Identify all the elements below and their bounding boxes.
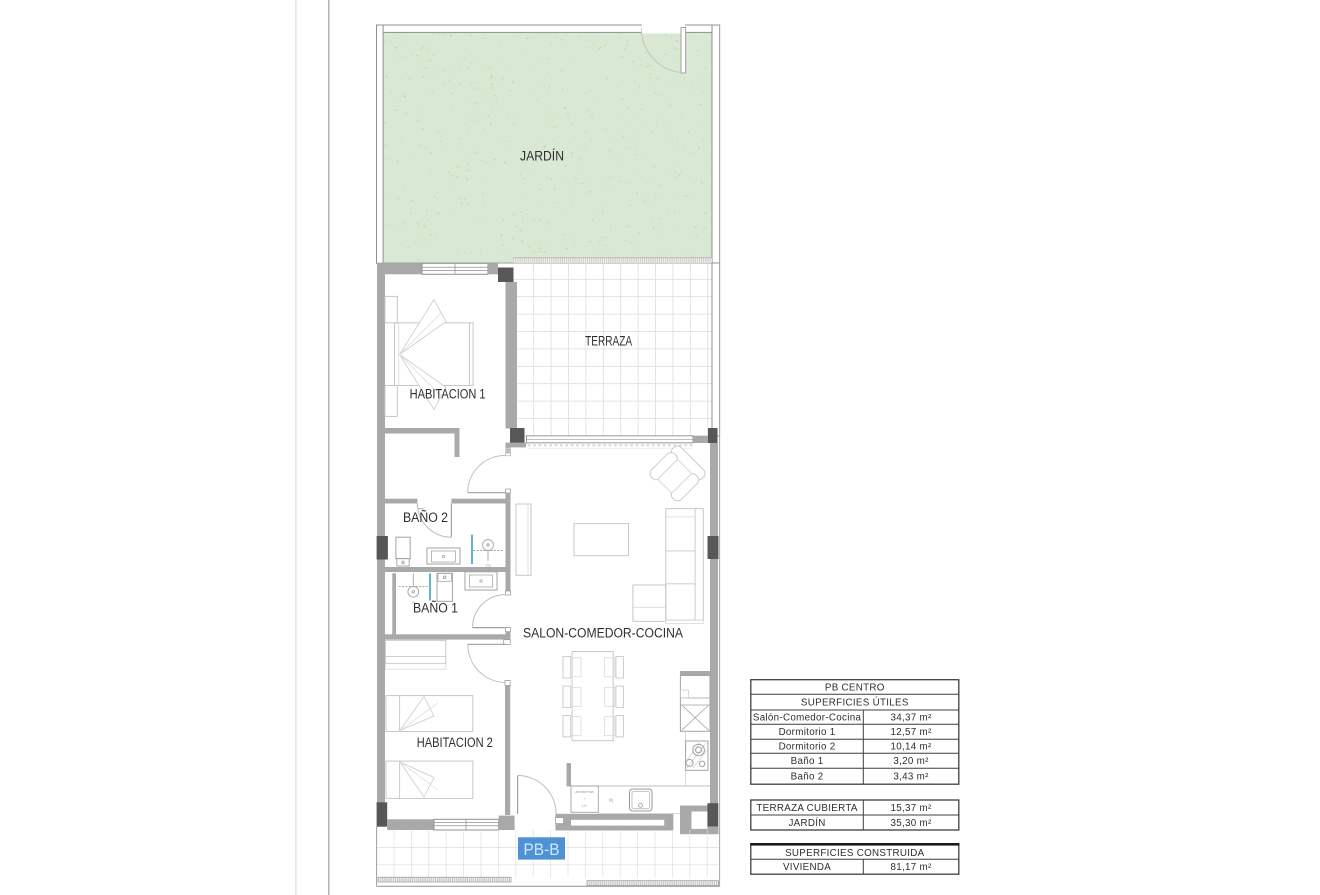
svg-text:10,14 m²: 10,14 m² bbox=[891, 742, 932, 753]
svg-text:BAÑO 1: BAÑO 1 bbox=[413, 600, 458, 617]
svg-text:SUPERFICIES ÚTILES: SUPERFICIES ÚTILES bbox=[801, 698, 909, 709]
svg-text:15a: 15a bbox=[485, 564, 491, 568]
svg-text:Baño 2: Baño 2 bbox=[791, 772, 824, 783]
svg-text:LV: LV bbox=[582, 803, 587, 808]
svg-text:SALON-COMEDOR-COCINA: SALON-COMEDOR-COCINA bbox=[523, 626, 683, 642]
svg-text:Dormitorio 2: Dormitorio 2 bbox=[779, 742, 836, 753]
svg-text:aerotermia: aerotermia bbox=[575, 790, 594, 794]
svg-text:Dormitorio 1: Dormitorio 1 bbox=[779, 727, 836, 738]
svg-text:15,37 m²: 15,37 m² bbox=[891, 803, 932, 814]
svg-text:BAÑO 2: BAÑO 2 bbox=[403, 509, 448, 526]
svg-text:PB CENTRO: PB CENTRO bbox=[825, 682, 885, 693]
svg-text:TERRAZA CUBIERTA: TERRAZA CUBIERTA bbox=[756, 803, 857, 814]
svg-text:TERRAZA: TERRAZA bbox=[585, 334, 632, 350]
svg-text:81,17 m²: 81,17 m² bbox=[891, 862, 932, 873]
svg-text:JARDÍN: JARDÍN bbox=[788, 818, 825, 829]
svg-text:Salón-Comedor-Cocina: Salón-Comedor-Cocina bbox=[753, 713, 862, 724]
svg-text:34,37 m²: 34,37 m² bbox=[891, 713, 932, 724]
svg-text:HABITACION 2: HABITACION 2 bbox=[417, 735, 493, 751]
svg-text:3,20 m²: 3,20 m² bbox=[893, 756, 929, 767]
svg-text:PB-B: PB-B bbox=[524, 840, 560, 859]
svg-text:VIVIENDA: VIVIENDA bbox=[783, 862, 831, 873]
svg-text:35,30 m²: 35,30 m² bbox=[891, 818, 932, 829]
svg-text:3,43 m²: 3,43 m² bbox=[893, 772, 929, 783]
svg-text:lvj: lvj bbox=[609, 798, 613, 803]
svg-text:12,57 m²: 12,57 m² bbox=[891, 727, 932, 738]
svg-text:Baño 1: Baño 1 bbox=[791, 756, 824, 767]
svg-text:HABITACION 1: HABITACION 1 bbox=[410, 387, 486, 403]
svg-text:JARDÍN: JARDÍN bbox=[520, 148, 564, 165]
svg-text:SUPERFICIES CONSTRUIDA: SUPERFICIES CONSTRUIDA bbox=[785, 848, 925, 859]
